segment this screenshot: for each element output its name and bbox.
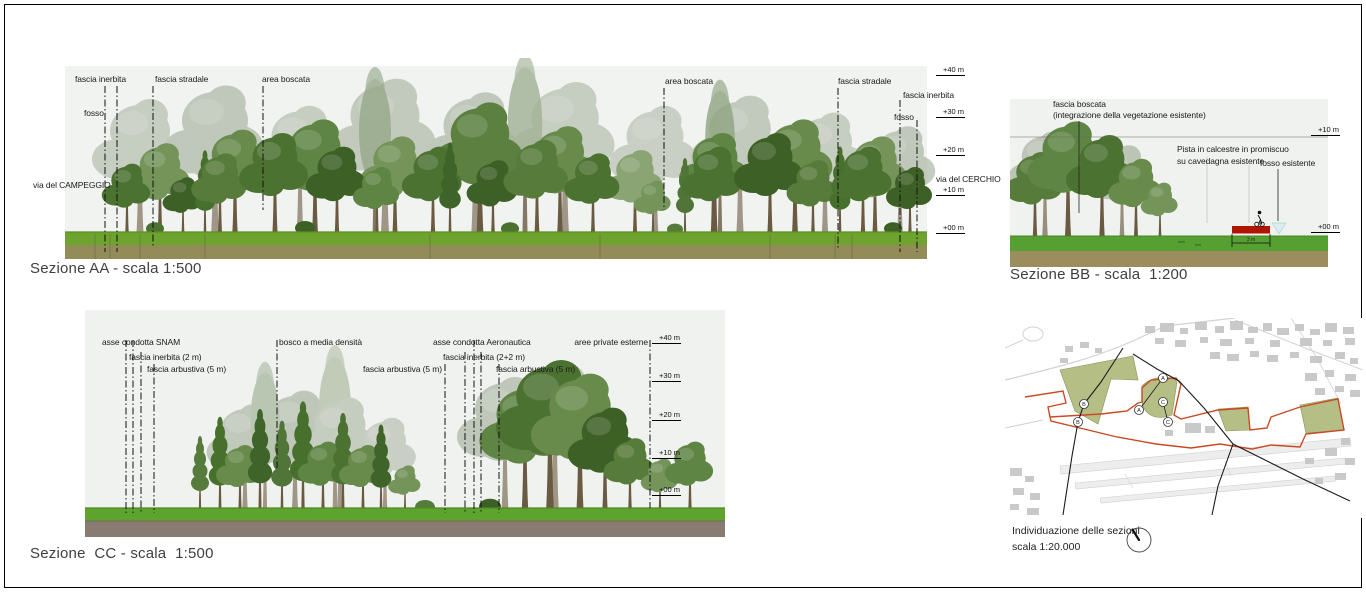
elevation-plus30: +30 m	[652, 371, 681, 382]
label-fascia-arbustiva-right: fascia arbustiva (5 m)	[496, 364, 575, 374]
section-cc-panel: asse condotta SNAM fascia inerbita (2 m)…	[85, 308, 745, 546]
section-aa-title: Sezione AA - scala 1:500	[30, 260, 202, 277]
label-pista-2: su cavedagna esistente	[1177, 156, 1264, 166]
elevation-plus20: +20 m	[936, 145, 965, 156]
label-fosso-esistente: fosso esistente	[1260, 158, 1315, 168]
section-bb-panel: 3 m fascia boscata (integrazione della v…	[1008, 92, 1360, 277]
elevation-plus00: +00 m	[936, 223, 965, 234]
section-bb-illustration: 3 m	[1010, 95, 1340, 270]
label-pista-1: Pista in calcestre in promiscuo	[1177, 144, 1289, 154]
label-fascia-boscata: fascia boscata	[1053, 99, 1106, 109]
elevation-plus40: +40 m	[936, 65, 965, 76]
label-area-boscata-left: area boscata	[262, 74, 310, 84]
ground-strip	[85, 508, 725, 537]
section-bb-title: Sezione BB - scala 1:200	[1010, 266, 1188, 283]
label-asse-condotta-snam: asse condotta SNAM	[102, 337, 180, 347]
drawing-sheet: fascia inerbita fosso fascia stradale ar…	[0, 0, 1366, 592]
elevation-plus00: +00 m	[652, 485, 681, 496]
svg-text:C: C	[1161, 400, 1165, 406]
label-fascia-arbustiva-left: fascia arbustiva (5 m)	[147, 364, 226, 374]
label-fascia-stradale-right: fascia stradale	[838, 76, 891, 86]
location-map: A A C C B B	[1005, 318, 1363, 518]
label-asse-condotta-aeronautica: asse condotta Aeronautica	[433, 337, 531, 347]
label-fascia-inerbita-left: fascia inerbita	[75, 74, 126, 84]
label-fascia-inerbita-2m: fascia inerbita (2 m)	[129, 352, 202, 362]
svg-text:B: B	[1082, 402, 1086, 408]
label-fascia-inerbita-right: fascia inerbita	[903, 90, 954, 100]
location-map-panel: A A C C B B Individuazione delle sezioni…	[1005, 318, 1363, 566]
elevation-plus10: +10 m	[936, 185, 965, 196]
elevation-plus00: +00 m	[1311, 222, 1340, 233]
ground-strip	[1010, 236, 1328, 267]
elevation-plus40: +40 m	[652, 333, 681, 344]
north-arrow-icon	[1123, 523, 1155, 555]
svg-text:B: B	[1076, 420, 1080, 426]
ground-strip	[65, 232, 927, 259]
label-area-boscata-right: area boscata	[665, 76, 713, 86]
svg-text:A: A	[1137, 408, 1141, 414]
label-fascia-inerbita-22: fascia inerbita (2+2 m)	[443, 352, 525, 362]
section-aa-panel: fascia inerbita fosso fascia stradale ar…	[28, 58, 968, 263]
svg-text:A: A	[1161, 376, 1165, 382]
label-bosco-media-densita: bosco a media densità	[279, 337, 362, 347]
elevation-plus30: +30 m	[936, 107, 965, 118]
map-scale-caption: scala 1:20.000	[1012, 541, 1080, 553]
label-fascia-boscata-2: (integrazione della vegetazione esistent…	[1053, 110, 1206, 120]
label-via-del-campeggio: via del CAMPEGGIO	[33, 180, 111, 190]
label-fosso-right: fosso	[894, 112, 914, 122]
elevation-plus20: +20 m	[652, 410, 681, 421]
label-fascia-arbustiva-mid: fascia arbustiva (5 m)	[363, 364, 442, 374]
section-cc-title: Sezione CC - scala 1:500	[30, 545, 214, 562]
label-fosso-left: fosso	[84, 108, 104, 118]
label-fascia-stradale-left: fascia stradale	[155, 74, 208, 84]
section-aa-illustration	[65, 58, 945, 263]
pista-width-label: 3 m	[1247, 237, 1255, 243]
svg-text:C: C	[1166, 420, 1170, 426]
map-caption: Individuazione delle sezioni	[1012, 525, 1140, 537]
elevation-plus10: +10 m	[1311, 125, 1340, 136]
pista-calcestre	[1232, 226, 1270, 234]
label-via-del-cerchio: via del CERCHIO	[936, 174, 1001, 184]
label-aree-private-esterne: aree private esterne	[574, 337, 648, 347]
elevation-plus10: +10 m	[652, 448, 681, 459]
